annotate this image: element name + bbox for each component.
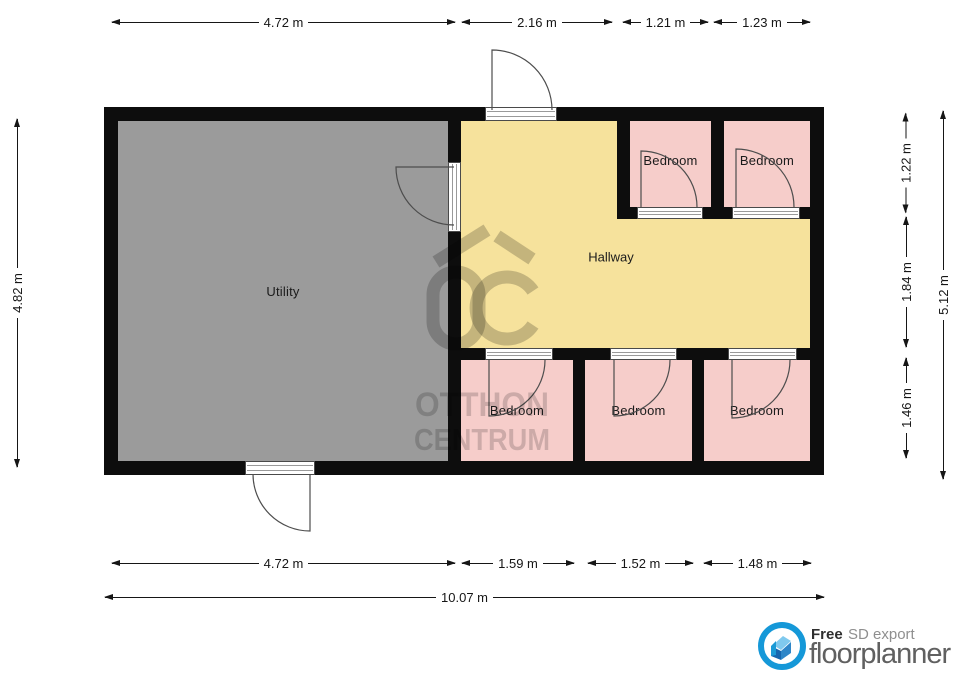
arrow-left-icon [105,597,436,598]
wall-right [810,107,824,475]
arrow-right-icon [943,111,944,270]
arrow-left-icon [906,433,907,458]
door-swing-utility-exterior [253,474,310,531]
dim-label: 1.46 m [899,383,914,433]
dim-bottom-bedroom-3: 1.48 m [704,555,811,571]
wall-under-top-bedrooms-1 [617,207,637,219]
room-bedroom-bottom-1: Bedroom [461,360,573,461]
dim-bottom-bedroom-2: 1.52 m [588,555,693,571]
room-label-bedroom-top-1: Bedroom [643,153,697,168]
arrow-left-icon [943,320,944,479]
wall-between-bottom-bedrooms-1 [573,360,585,461]
dim-top-hallway: 2.16 m [462,14,612,30]
dim-left-height: 4.82 m [9,119,25,467]
door-frame-bedroom-top-2 [732,207,800,219]
arrow-left-icon [623,22,641,23]
arrow-right-icon [782,563,811,564]
room-utility: Utility [118,121,448,461]
room-label-bedroom-bottom-3: Bedroom [730,403,784,418]
dim-right-hallway: 1.84 m [898,217,914,347]
door-frame-bedroom-bottom-2 [610,348,677,360]
dim-label: 1.59 m [493,556,543,571]
wall-top-left-segment [104,107,485,121]
dim-label: 1.21 m [641,15,691,30]
wall-bottom-left-segment [104,461,245,475]
dim-label: 4.72 m [259,15,309,30]
room-bedroom-bottom-3: Bedroom [704,360,810,461]
wall-under-hallway-4 [797,348,824,360]
arrow-left-icon [462,22,512,23]
dim-label: 1.52 m [616,556,666,571]
dim-bottom-bedroom-1: 1.59 m [462,555,574,571]
room-bedroom-top-2: Bedroom [724,121,810,207]
arrow-right-icon [690,22,708,23]
arrow-left-icon [906,307,907,347]
wall-under-hallway-2 [553,348,610,360]
arrow-right-icon [787,22,810,23]
arrow-right-icon [562,22,612,23]
wall-between-bottom-bedrooms-2 [692,360,704,461]
room-bedroom-top-1: Bedroom [630,121,711,207]
room-label-bedroom-bottom-2: Bedroom [611,403,665,418]
dim-label: 1.23 m [737,15,787,30]
room-label-utility: Utility [266,284,299,299]
dim-label: 4.72 m [259,556,309,571]
arrow-left-icon [905,188,906,213]
arrow-left-icon [462,563,493,564]
door-frame-utility-hallway [448,162,461,232]
door-frame-utility-exterior [245,461,315,475]
door-frame-entrance [485,107,557,121]
arrow-right-icon [493,597,824,598]
dim-top-bedroom-1: 1.21 m [623,14,708,30]
arrow-left-icon [714,22,737,23]
dim-right-total-height: 5.12 m [935,111,951,479]
dim-label: 1.84 m [899,257,914,307]
room-hallway-right [617,219,810,348]
wall-under-hallway-3 [677,348,728,360]
arrow-right-icon [543,563,574,564]
dim-top-bedroom-2: 1.23 m [714,14,810,30]
dim-top-utility: 4.72 m [112,14,455,30]
door-frame-bedroom-bottom-1 [485,348,553,360]
arrow-right-icon [665,563,693,564]
floorplanner-logo: Free SD export floorplanner [755,618,955,676]
arrow-right-icon [905,114,906,139]
door-frame-bedroom-bottom-3 [728,348,797,360]
dim-label: 1.22 m [898,138,913,188]
room-hallway-upper [461,121,617,348]
dim-right-top-bedrooms: 1.22 m [898,114,914,213]
dim-bottom-total-width: 10.07 m [105,589,824,605]
wall-under-top-bedrooms-3 [800,207,824,219]
wall-under-top-bedrooms-2 [703,207,732,219]
wall-utility-hall-upper [448,121,461,162]
dim-bottom-utility: 4.72 m [112,555,455,571]
door-frame-bedroom-top-1 [637,207,703,219]
arrow-left-icon [112,563,259,564]
arrow-right-icon [906,358,907,383]
dim-label: 4.82 m [10,268,25,318]
door-swing-entrance [492,50,552,110]
arrow-right-icon [308,22,455,23]
dim-label: 1.48 m [733,556,783,571]
room-label-bedroom-top-2: Bedroom [740,153,794,168]
floorplan-canvas: Utility Hallway Bedroom Bedroom Bedroom … [0,0,960,679]
room-bedroom-bottom-2: Bedroom [585,360,692,461]
wall-bottom-right-segment [315,461,824,475]
dim-label: 10.07 m [436,590,493,605]
footer-brand-label: floorplanner [809,638,951,670]
wall-between-top-bedrooms [711,121,724,219]
wall-hall-bedroom-top-1 [617,121,630,219]
room-label-hallway: Hallway [588,250,634,265]
arrow-right-icon [17,119,18,268]
arrow-left-icon [112,22,259,23]
wall-top-right-segment [557,107,824,121]
arrow-right-icon [906,217,907,257]
arrow-left-icon [17,318,18,467]
wall-utility-hall-lower [448,232,461,461]
arrow-left-icon [704,563,733,564]
room-label-bedroom-bottom-1: Bedroom [490,403,544,418]
arrow-right-icon [308,563,455,564]
dim-right-bottom-bedrooms: 1.46 m [898,358,914,458]
dim-label: 5.12 m [936,270,951,320]
arrow-left-icon [588,563,616,564]
wall-under-hallway-1 [448,348,485,360]
wall-left [104,107,118,475]
dim-label: 2.16 m [512,15,562,30]
